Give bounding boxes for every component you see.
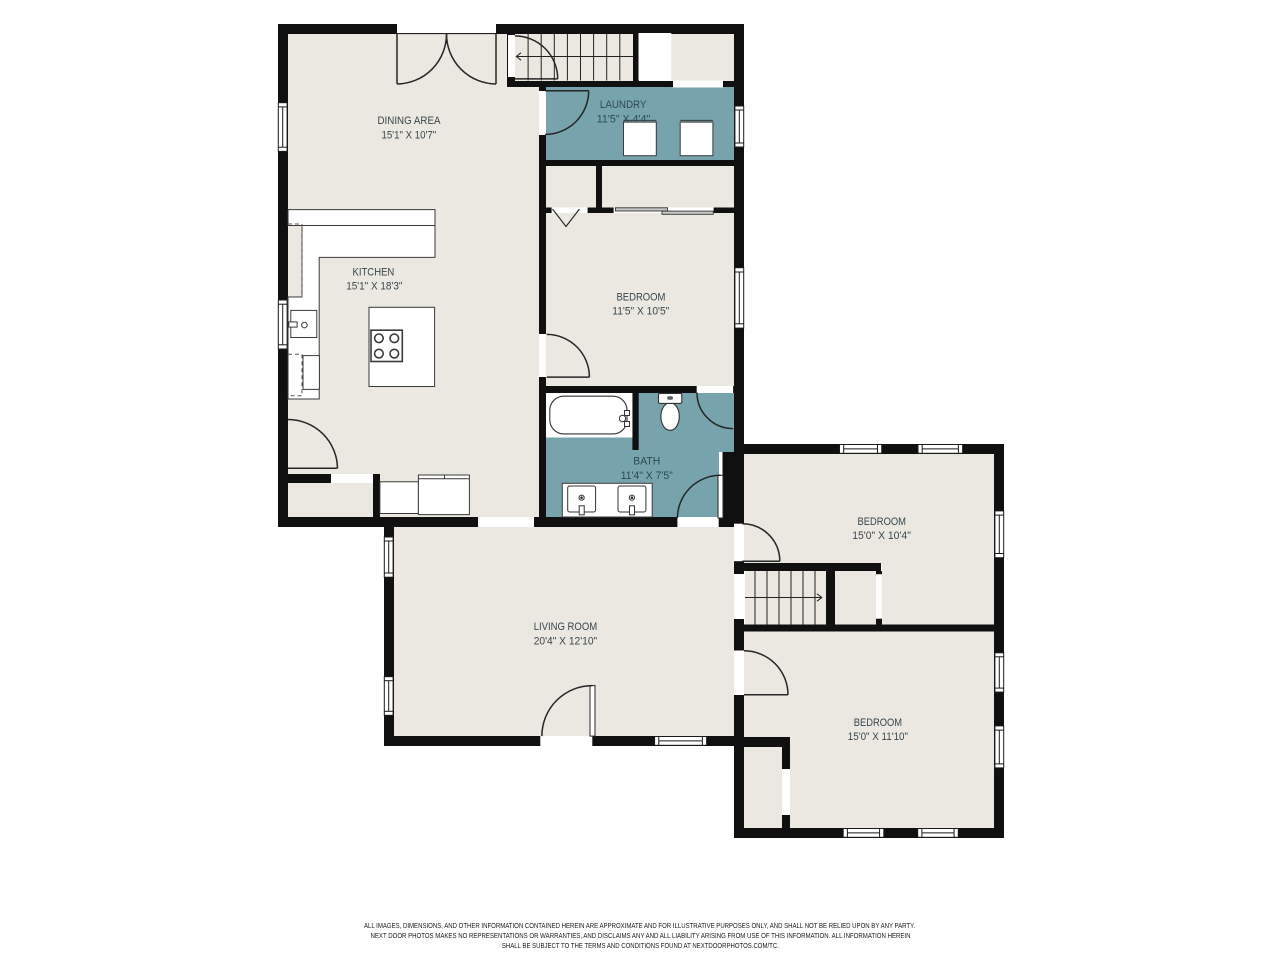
svg-text:NEXT DOOR PHOTOS MAKES NO REPR: NEXT DOOR PHOTOS MAKES NO REPRESENTATION… (371, 933, 911, 940)
svg-text:LAUNDRY: LAUNDRY (600, 99, 647, 111)
svg-text:15'0" X 11'10": 15'0" X 11'10" (848, 731, 908, 743)
svg-text:11'5" X 4'4": 11'5" X 4'4" (597, 114, 651, 126)
svg-text:15'1" X 10'7": 15'1" X 10'7" (382, 130, 437, 142)
svg-text:LIVING ROOM: LIVING ROOM (534, 621, 598, 633)
svg-text:BATH: BATH (633, 456, 660, 468)
svg-text:SHALL BE SUBJECT TO THE TERMS: SHALL BE SUBJECT TO THE TERMS AND CONDIT… (502, 943, 779, 950)
svg-text:11'4" X 7'5": 11'4" X 7'5" (621, 470, 673, 482)
svg-text:BEDROOM: BEDROOM (617, 292, 666, 304)
svg-text:15'0" X 10'4": 15'0" X 10'4" (852, 530, 911, 542)
svg-text:BEDROOM: BEDROOM (858, 516, 907, 528)
svg-text:15'1" X 18'3": 15'1" X 18'3" (346, 281, 402, 293)
svg-text:DINING AREA: DINING AREA (378, 115, 441, 127)
svg-text:KITCHEN: KITCHEN (353, 267, 395, 279)
svg-text:20'4" X 12'10": 20'4" X 12'10" (534, 636, 598, 648)
svg-text:BEDROOM: BEDROOM (854, 717, 902, 729)
svg-text:11'5" X 10'5": 11'5" X 10'5" (612, 306, 669, 318)
svg-text:ALL IMAGES, DIMENSIONS, AND OT: ALL IMAGES, DIMENSIONS, AND OTHER INFORM… (364, 923, 915, 930)
